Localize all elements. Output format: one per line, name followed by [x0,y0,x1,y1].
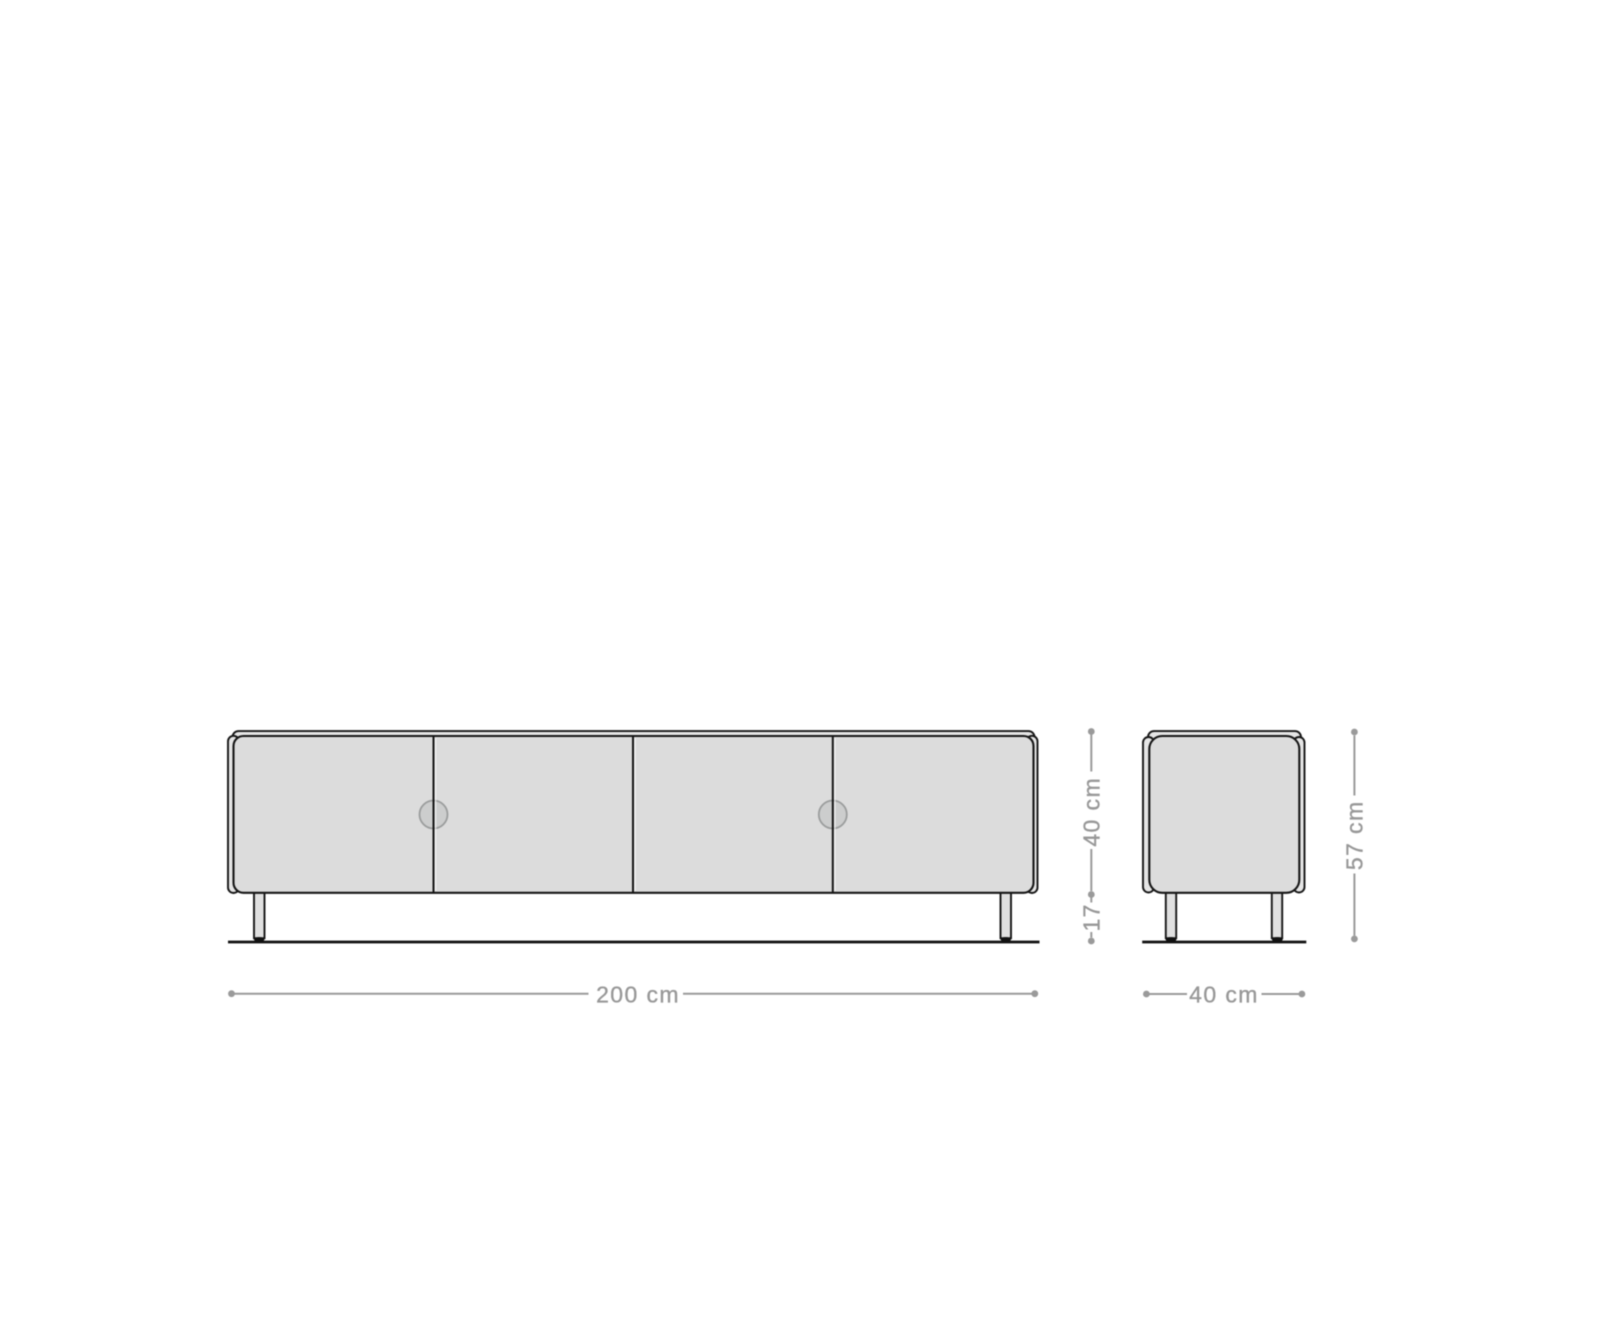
svg-text:40 cm: 40 cm [1189,981,1259,1007]
svg-text:57 cm: 57 cm [1341,800,1367,870]
svg-text:200 cm: 200 cm [596,981,680,1007]
svg-text:17: 17 [1078,903,1104,931]
svg-text:40 cm: 40 cm [1078,777,1104,847]
